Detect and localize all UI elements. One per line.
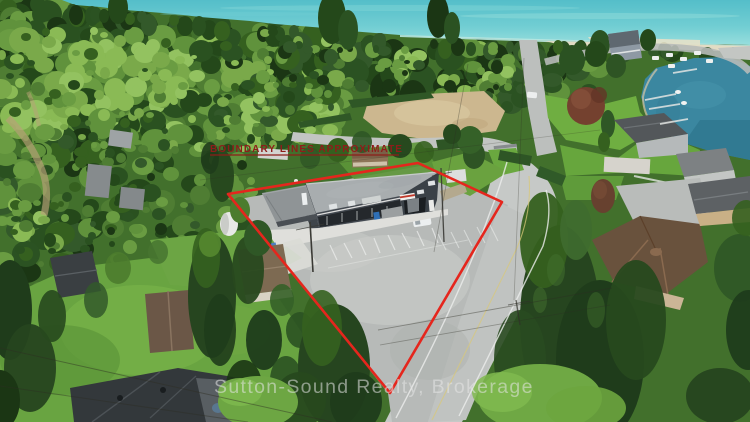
svg-text:BOUNDARY LINES APPROXIMATE: BOUNDARY LINES APPROXIMATE	[210, 144, 403, 155]
svg-text:Sutton-Sound Realty, Brokerage: Sutton-Sound Realty, Brokerage	[214, 376, 534, 398]
